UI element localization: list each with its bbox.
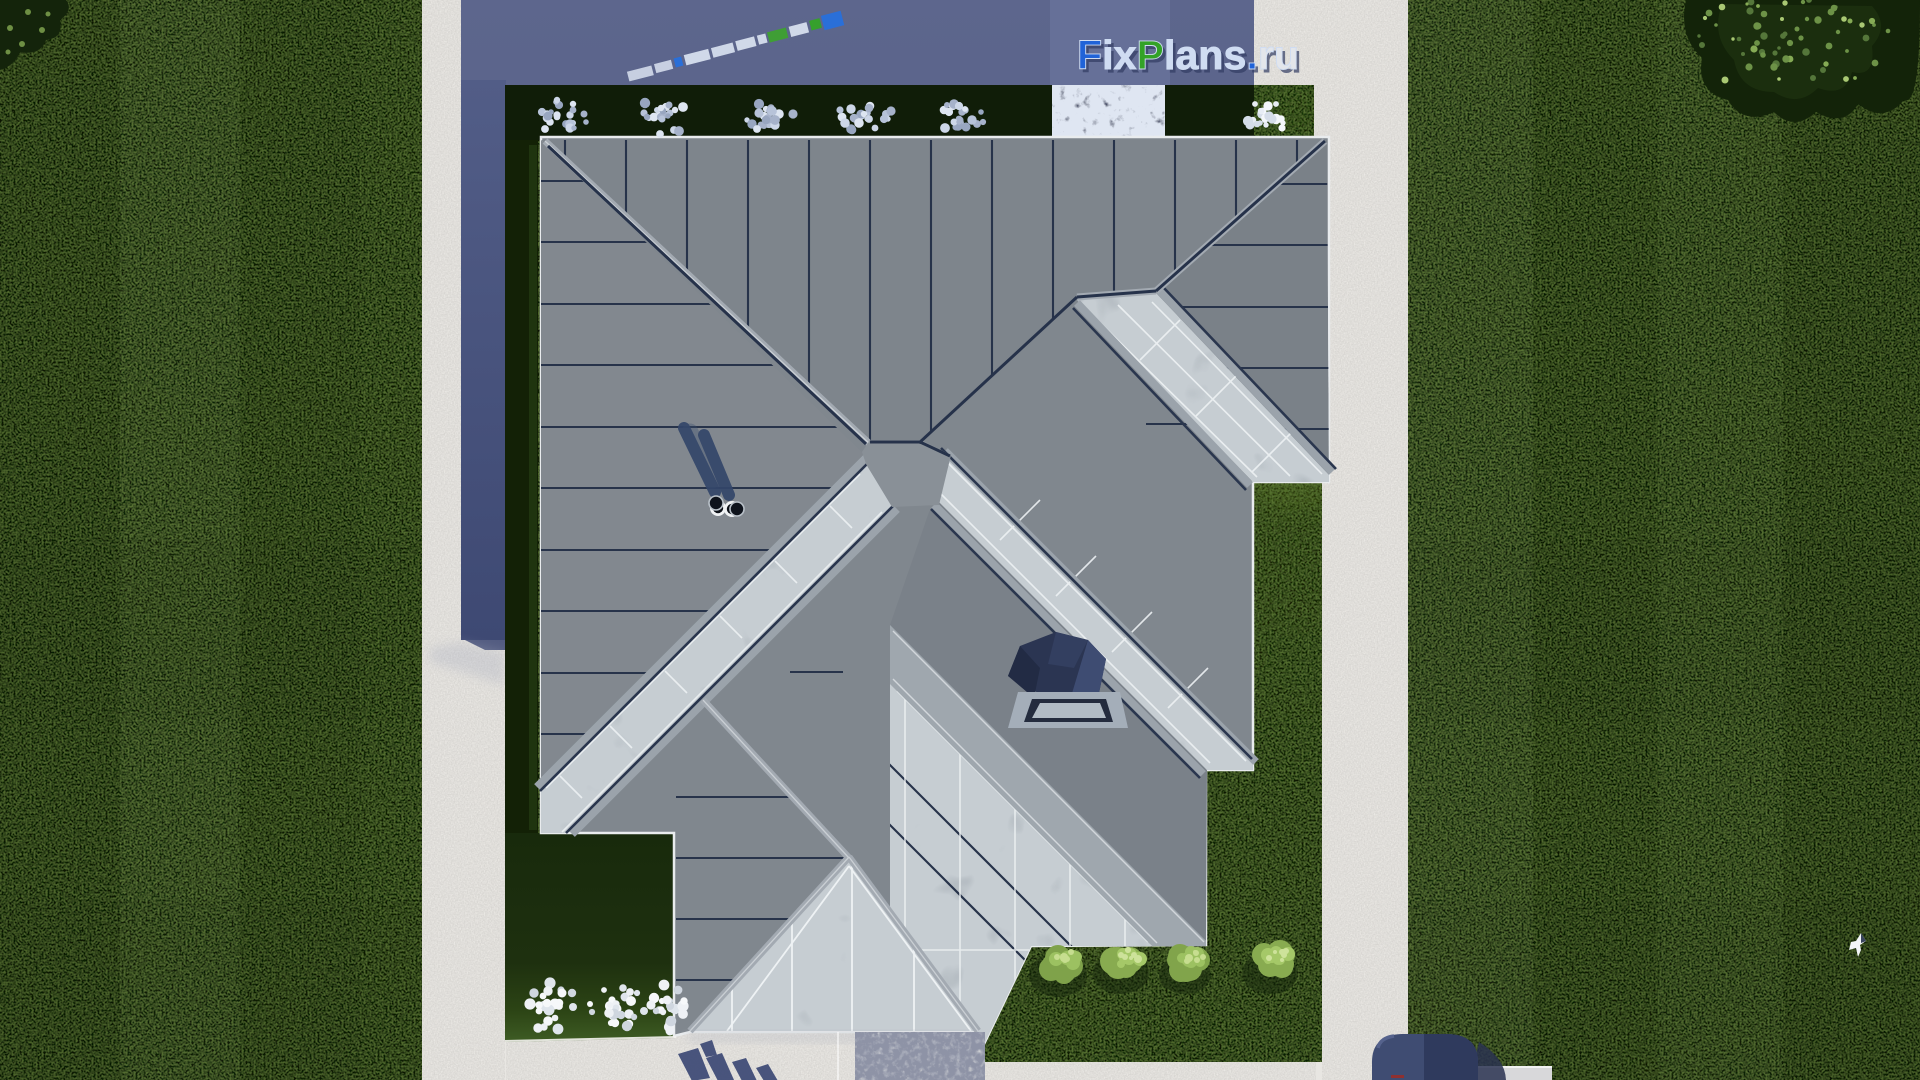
- svg-text:FixPlans.ru: FixPlans.ru: [1077, 32, 1299, 78]
